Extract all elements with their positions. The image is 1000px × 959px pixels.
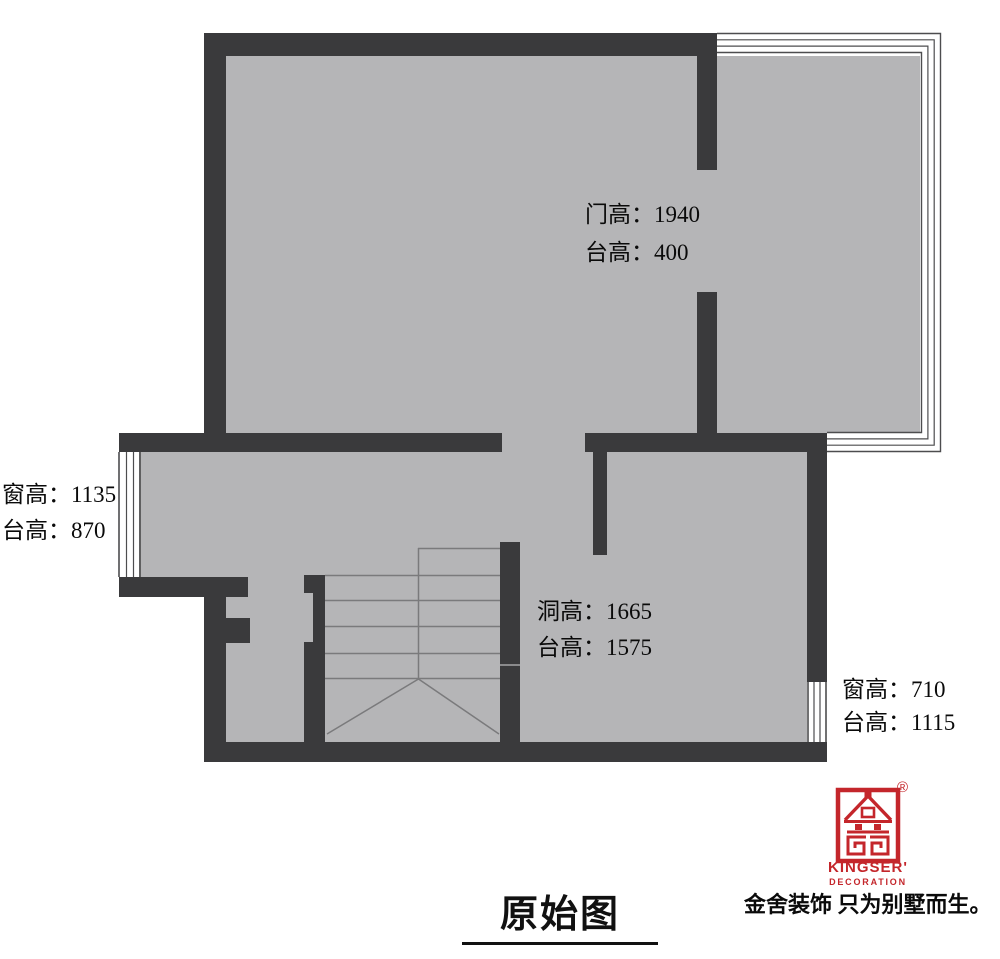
corner-window xyxy=(717,33,941,452)
title-underline xyxy=(462,942,658,945)
west-window xyxy=(118,452,141,577)
brand-name: KINGSER' xyxy=(824,860,912,875)
opening-height-label: 洞高：1665 xyxy=(537,600,652,623)
registered-trademark-icon: ® xyxy=(897,780,908,795)
door-sill-label: 台高：400 xyxy=(585,241,689,264)
page-title: 原始图 xyxy=(462,896,658,936)
brand-tagline: 金舍装饰 只为别墅而生。 xyxy=(744,892,984,917)
east-window xyxy=(807,682,827,742)
opening-sill-label: 台高：1575 xyxy=(537,636,652,659)
east-window-height-label: 窗高：710 xyxy=(842,678,946,701)
floor-plan-canvas: 门高：1940 台高：400 窗高：1135 台高：870 洞高：1665 台高… xyxy=(0,0,1000,959)
west-window-sill-label: 台高：870 xyxy=(2,519,106,542)
west-window-height-label: 窗高：1135 xyxy=(2,483,116,506)
east-window-sill-label: 台高：1115 xyxy=(842,711,955,734)
staircase xyxy=(325,548,500,734)
brand-subtitle: DECORATION xyxy=(824,878,912,887)
door-height-label: 门高：1940 xyxy=(585,203,700,226)
